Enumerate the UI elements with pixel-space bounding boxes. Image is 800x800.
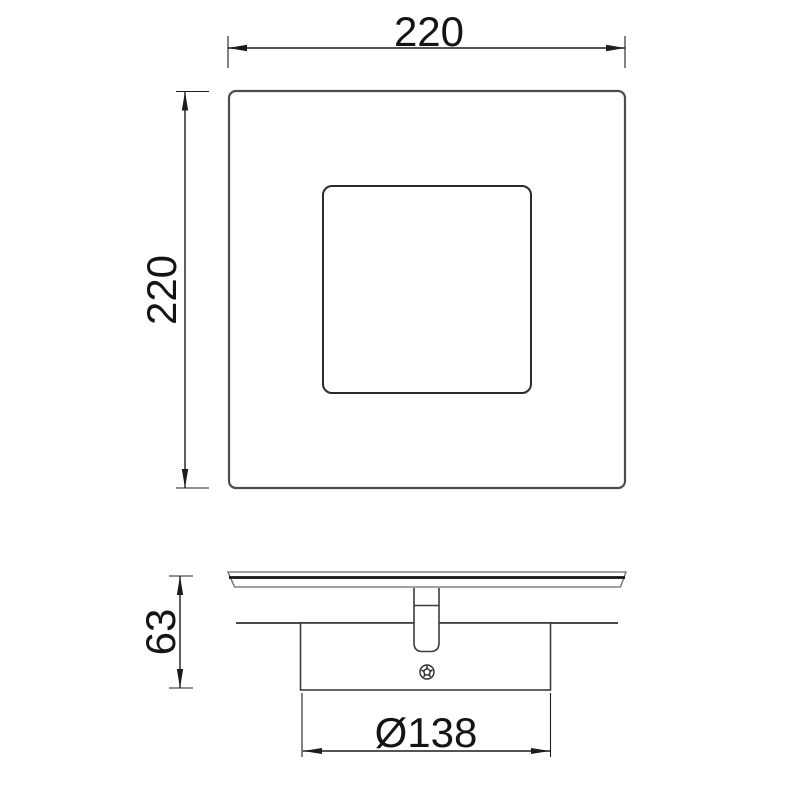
- lamp-dimension-drawing: 220 220: [0, 0, 800, 800]
- dimension-label-side-height: 63: [137, 609, 184, 656]
- screw-knob-icon: [420, 665, 434, 679]
- arrow-down-icon: [177, 669, 183, 688]
- arrow-up-icon: [177, 576, 183, 595]
- dimension-label-base-diameter: Ø138: [375, 709, 478, 756]
- arrow-right-icon: [606, 45, 625, 51]
- dimension-left-height: 220: [138, 92, 209, 489]
- arrow-right-icon: [531, 748, 550, 754]
- arrow-left-icon: [303, 748, 322, 754]
- dimension-base-diameter: Ø138: [302, 693, 551, 757]
- dimension-label-left-height: 220: [138, 255, 185, 325]
- side-view-panel-slab: [228, 572, 626, 587]
- technical-drawing-canvas: 220 220: [0, 0, 800, 800]
- arrow-left-icon: [228, 45, 247, 51]
- arrow-down-icon: [182, 469, 188, 488]
- dimension-side-height: 63: [137, 576, 193, 688]
- dimension-top-width: 220: [228, 8, 625, 68]
- side-view: [228, 572, 626, 690]
- side-view-stem: [414, 588, 439, 652]
- arrow-up-icon: [182, 92, 188, 111]
- top-view: [229, 91, 625, 488]
- dimension-label-top-width: 220: [394, 8, 464, 55]
- top-view-outer-panel: [229, 91, 625, 488]
